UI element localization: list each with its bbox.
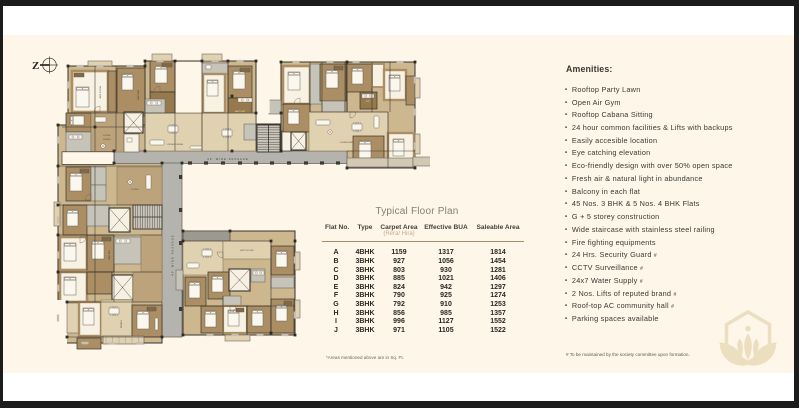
svg-text:DINING: DINING — [103, 139, 111, 141]
svg-text:LIVING/: LIVING/ — [103, 135, 111, 137]
svg-text:LIVING: LIVING — [131, 189, 139, 191]
svg-text:KIT: KIT — [366, 101, 370, 103]
svg-text:ANTI RM: ANTI RM — [137, 90, 140, 100]
svg-text:ANTI RM: ANTI RM — [235, 110, 245, 113]
svg-text:BED ROOM: BED ROOM — [100, 86, 102, 99]
svg-text:40' WIDE PASSAGE: 40' WIDE PASSAGE — [171, 234, 175, 275]
svg-text:40' WIDE PASSAGE: 40' WIDE PASSAGE — [207, 157, 248, 161]
svg-text:DINING: DINING — [121, 320, 123, 328]
svg-text:BED RM: BED RM — [109, 250, 111, 259]
svg-text:ANTI ROOM: ANTI ROOM — [240, 249, 253, 252]
svg-text:Z: Z — [32, 60, 39, 72]
